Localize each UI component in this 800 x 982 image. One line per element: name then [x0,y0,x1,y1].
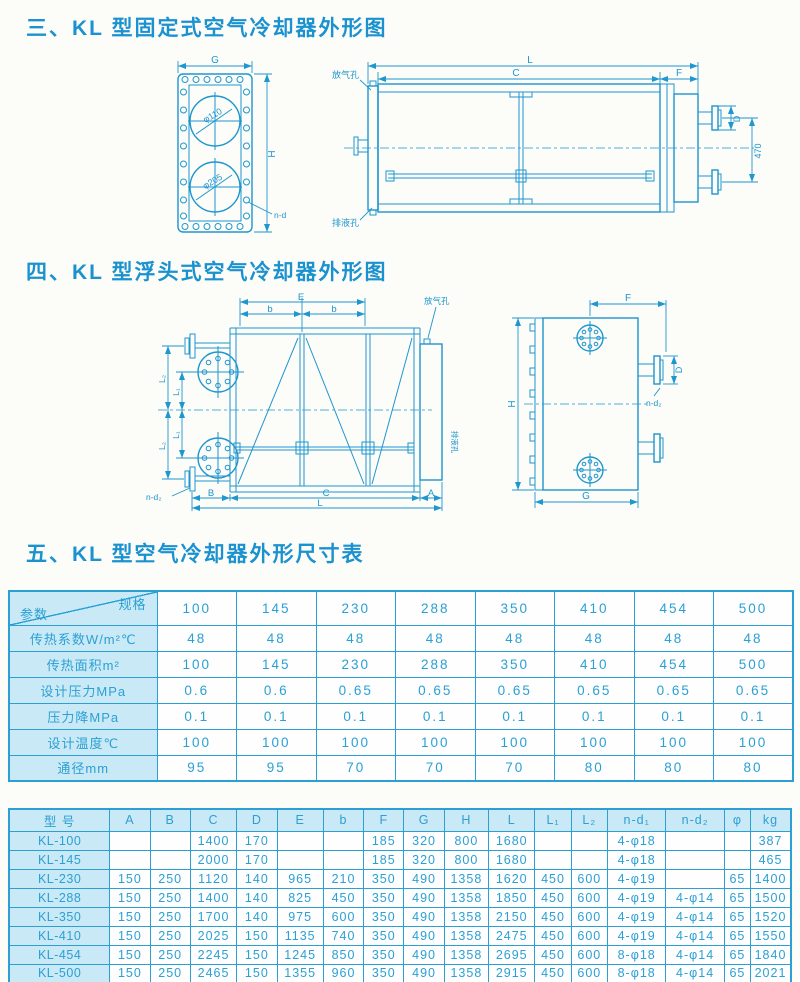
dim-value-cell: 350 [364,964,404,982]
param-value-cell: 100 [634,729,714,755]
dim-value-cell [666,831,724,850]
dim-value-cell: 1520 [751,907,792,926]
table-row: KL-3501502501700140975600350490135821504… [9,907,791,926]
vent-hole-label: 放气孔 [332,69,359,80]
spec-column-header: 288 [396,591,476,625]
dim-value-cell: 1850 [489,888,535,907]
dim-value-cell: 450 [535,907,571,926]
dim-value-cell [277,850,323,869]
dim-value-cell: 185 [364,850,404,869]
dim-value-cell [110,850,150,869]
table-row: 通径mm9595707070808080 [9,755,793,781]
dim-label-l: L [527,55,533,66]
dim-value-cell: 1120 [190,869,236,888]
model-cell: KL-145 [9,850,110,869]
dim-value-cell: 150 [237,964,277,982]
dim-label-l2-top: L₂ [157,375,167,383]
dim-value-cell [535,850,571,869]
dim-value-cell: 1358 [444,888,488,907]
dim-value-cell: 975 [277,907,323,926]
param-value-cell: 410 [555,651,635,677]
floating-head-side-view-drawing: E b b [130,292,470,514]
dim-column-header: 型 号 [9,809,110,831]
dim-value-cell: 350 [364,869,404,888]
param-value-cell: 0.65 [634,677,714,703]
param-value-cell: 48 [237,625,317,651]
table-row: KL-2881502501400140825450350490135818504… [9,888,791,907]
dim-value-cell: 490 [404,964,444,982]
spec-column-header: 454 [634,591,714,625]
param-row-label: 通径mm [9,755,157,781]
dim-label-c2: C [323,488,330,499]
dim-label-g2: G [582,491,590,502]
dim-value-cell: 1135 [277,926,323,945]
dim-value-cell: 4-φ14 [666,888,724,907]
dim-value-cell: 65 [724,888,750,907]
dim-column-header: E [277,809,323,831]
drain-hole-label: 排液孔 [332,217,359,228]
dim-value-cell: 150 [110,869,150,888]
bolt-hole-note-nd2: n-d₂ [146,492,162,502]
dim-column-header: B [150,809,190,831]
dim-value-cell: 490 [404,888,444,907]
dim-value-cell [323,850,363,869]
dim-value-cell: 140 [237,869,277,888]
section4-title: 四、KL 型浮头式空气冷却器外形图 [0,256,800,286]
param-value-cell: 0.65 [475,677,555,703]
dim-value-cell: 1358 [444,926,488,945]
dim-label-l2full: L [317,498,322,509]
param-row-label: 压力降MPa [9,703,157,729]
param-value-cell: 0.1 [157,703,237,729]
table-row: KL-100140017018532080016804-φ18387 [9,831,791,850]
model-cell: KL-410 [9,926,110,945]
dim-label-a: A [428,488,435,499]
dim-value-cell [110,831,150,850]
dim-value-cell: 2000 [190,850,236,869]
param-value-cell: 100 [157,729,237,755]
dim-value-cell: 2245 [190,945,236,964]
dim-value-cell: 140 [237,888,277,907]
model-cell: KL-288 [9,888,110,907]
dim-value-cell: 350 [364,945,404,964]
spec-column-header: 100 [157,591,237,625]
param-value-cell: 288 [396,651,476,677]
model-cell: KL-500 [9,964,110,982]
dim-value-cell: 850 [323,945,363,964]
dim-value-cell: 1245 [277,945,323,964]
param-row-label: 设计压力MPa [9,677,157,703]
dim-value-cell: 150 [110,907,150,926]
param-value-cell: 0.1 [237,703,317,729]
dim-value-cell: 170 [237,850,277,869]
dim-label-l2-bottom: L₂ [157,442,167,450]
dim-column-header: G [404,809,444,831]
spec-column-header: 230 [316,591,396,625]
dim-value-cell: 1620 [489,869,535,888]
corner-label-spec: 规格 [118,594,146,613]
dim-value-cell: 740 [323,926,363,945]
param-value-cell: 70 [396,755,476,781]
dim-value-cell: 8-φ18 [607,945,665,964]
dim-value-cell [150,831,190,850]
dim-value-cell: 210 [323,869,363,888]
floating-head-drawings: E b b [0,290,800,518]
param-value-cell: 100 [396,729,476,755]
dim-value-cell: 4-φ14 [666,907,724,926]
dim-label-b2: b [331,304,336,315]
param-value-cell: 0.65 [555,677,635,703]
dim-value-cell: 350 [364,926,404,945]
dim-column-header: L₁ [535,809,571,831]
dim-value-cell: 250 [150,926,190,945]
dim-value-cell: 4-φ14 [666,964,724,982]
dim-value-cell: 150 [237,945,277,964]
dim-value-cell: 1358 [444,964,488,982]
dim-value-cell: 250 [150,888,190,907]
dim-value-cell [666,869,724,888]
dim-value-cell [666,850,724,869]
dim-value-cell: 600 [323,907,363,926]
dim-value-cell: 490 [404,926,444,945]
dim-label-b-cap: B [208,488,214,499]
table-row: 设计温度℃100100100100100100100100 [9,729,793,755]
param-value-cell: 350 [475,651,555,677]
param-value-cell: 100 [316,729,396,755]
vent-hole-label-2: 放气孔 [424,296,450,306]
table-row: KL-145200017018532080016804-φ18465 [9,850,791,869]
dim-column-header: L [489,809,535,831]
section3-title: 三、KL 型固定式空气冷却器外形图 [0,0,800,42]
dim-column-header: A [110,809,150,831]
dim-value-cell [150,850,190,869]
dim-value-cell: 65 [724,907,750,926]
dim-value-cell: 350 [364,907,404,926]
table-row: 规格参数100145230288350410454500 [9,591,793,625]
corner-label-param: 参数 [20,604,48,623]
dim-value-cell: 1355 [277,964,323,982]
floating-head-end-view-drawing: F [488,292,688,514]
dim-value-cell: 1680 [489,831,535,850]
dim-value-cell: 150 [110,945,150,964]
table-row: 型 号ABCDEbFGHLL₁L₂n-d₁n-d₂φkg [9,809,791,831]
dim-value-cell: 320 [404,850,444,869]
dim-value-cell: 450 [535,945,571,964]
catalog-page: 三、KL 型固定式空气冷却器外形图 G [0,0,800,982]
dim-value-cell [571,831,607,850]
dim-value-cell: 1358 [444,907,488,926]
dim-value-cell: 2915 [489,964,535,982]
dim-value-cell: 1400 [190,888,236,907]
dim-label-h: H [267,150,278,157]
dim-value-cell [571,850,607,869]
param-value-cell: 0.1 [396,703,476,729]
dim-value-cell: 600 [571,888,607,907]
dim-value-cell: 350 [364,888,404,907]
spec-table-corner-cell: 规格参数 [9,591,157,625]
dim-value-cell: 150 [110,888,150,907]
table-row: KL-5001502502465150135596035049013582915… [9,964,791,982]
param-value-cell: 100 [157,651,237,677]
param-value-cell: 48 [396,625,476,651]
param-value-cell: 70 [475,755,555,781]
dim-column-header: b [323,809,363,831]
param-value-cell: 454 [634,651,714,677]
spec-column-header: 145 [237,591,317,625]
dim-value-cell: 140 [237,907,277,926]
dimension-table: 型 号ABCDEbFGHLL₁L₂n-d₁n-d₂φkgKL-100140017… [8,808,792,982]
dim-value-cell: 4-φ19 [607,888,665,907]
dim-label-f2: F [625,293,631,304]
param-value-cell: 48 [157,625,237,651]
dim-value-cell: 490 [404,945,444,964]
dim-value-cell: 2025 [190,926,236,945]
dim-value-cell: 490 [404,869,444,888]
param-value-cell: 80 [634,755,714,781]
dim-value-cell: 1358 [444,869,488,888]
dim-value-cell: 4-φ18 [607,850,665,869]
dim-value-cell: 465 [751,850,792,869]
dim-label-l1-top: L₁ [171,388,181,396]
dim-value-cell: 450 [323,888,363,907]
dim-value-cell: 320 [404,831,444,850]
param-value-cell: 0.65 [714,677,794,703]
model-cell: KL-454 [9,945,110,964]
drain-hole-label-2: 排液孔 [450,431,460,454]
model-cell: KL-100 [9,831,110,850]
dim-value-cell: 600 [571,945,607,964]
dim-value-cell: 1500 [751,888,792,907]
dim-value-cell: 960 [323,964,363,982]
param-value-cell: 48 [316,625,396,651]
dim-value-cell: 2465 [190,964,236,982]
dim-value-cell: 250 [150,869,190,888]
model-cell: KL-350 [9,907,110,926]
spec-column-header: 500 [714,591,794,625]
dim-value-cell: 600 [571,926,607,945]
spec-column-header: 350 [475,591,555,625]
dim-label-d2: D [674,366,684,373]
dim-value-cell: 1400 [751,869,792,888]
dim-value-cell: 600 [571,964,607,982]
dim-value-cell: 4-φ14 [666,945,724,964]
param-value-cell: 500 [714,651,794,677]
table-row: 压力降MPa0.10.10.10.10.10.10.10.1 [9,703,793,729]
param-value-cell: 100 [555,729,635,755]
dim-value-cell: 2695 [489,945,535,964]
fixed-type-end-view-drawing: G φ110 φ205 H [158,54,308,242]
dim-value-cell: 150 [110,926,150,945]
param-value-cell: 0.1 [714,703,794,729]
dim-label-l1-bottom: L₁ [171,431,181,439]
dim-value-cell: 1840 [751,945,792,964]
dim-value-cell: 1358 [444,945,488,964]
dim-column-header: H [444,809,488,831]
param-value-cell: 95 [157,755,237,781]
dim-value-cell [724,850,750,869]
spec-column-header: 410 [555,591,635,625]
dim-label-g: G [211,55,219,66]
dim-value-cell: 65 [724,869,750,888]
dim-value-cell: 825 [277,888,323,907]
param-value-cell: 0.6 [157,677,237,703]
table-row: KL-4541502502245150124585035049013582695… [9,945,791,964]
fixed-type-drawings: G φ110 φ205 H [0,54,800,246]
dim-value-cell: 185 [364,831,404,850]
dim-column-header: n-d₁ [607,809,665,831]
table-row: 设计压力MPa0.60.60.650.650.650.650.650.65 [9,677,793,703]
dim-value-cell: 450 [535,888,571,907]
param-row-label: 传热系数W/m²℃ [9,625,157,651]
param-row-label: 传热面积m² [9,651,157,677]
dim-label-b1: b [267,304,272,315]
param-value-cell: 0.65 [396,677,476,703]
dim-column-header: D [237,809,277,831]
param-value-cell: 0.65 [316,677,396,703]
dim-value-cell: 2021 [751,964,792,982]
param-value-cell: 48 [634,625,714,651]
param-value-cell: 80 [555,755,635,781]
spec-table: 规格参数100145230288350410454500传热系数W/m²℃484… [8,590,794,782]
param-value-cell: 48 [714,625,794,651]
param-value-cell: 70 [316,755,396,781]
dim-value-cell: 250 [150,907,190,926]
dim-value-cell: 150 [110,964,150,982]
param-value-cell: 0.1 [555,703,635,729]
param-row-label: 设计温度℃ [9,729,157,755]
dim-value-cell [323,831,363,850]
dim-value-cell: 800 [444,831,488,850]
bolt-hole-note: n-d [274,210,287,220]
dim-value-cell: 600 [571,869,607,888]
dim-value-cell: 4-φ19 [607,926,665,945]
dim-value-cell: 2475 [489,926,535,945]
dim-value-cell: 387 [751,831,792,850]
dim-value-cell: 65 [724,926,750,945]
param-value-cell: 80 [714,755,794,781]
dim-value-cell: 450 [535,964,571,982]
dim-label-e: E [298,292,304,303]
param-value-cell: 95 [237,755,317,781]
dim-column-header: L₂ [571,809,607,831]
dim-value-cell: 65 [724,945,750,964]
param-value-cell: 48 [475,625,555,651]
dim-value-cell: 1700 [190,907,236,926]
dim-value-cell: 4-φ18 [607,831,665,850]
dim-value-cell: 1680 [489,850,535,869]
dim-label-d: D [732,115,742,122]
dim-label-c: C [512,68,519,79]
dim-value-cell: 965 [277,869,323,888]
table-row: KL-4101502502025150113574035049013582475… [9,926,791,945]
dim-value-cell [724,831,750,850]
dim-value-cell: 4-φ19 [607,907,665,926]
dim-column-header: kg [751,809,792,831]
dim-value-cell: 1550 [751,926,792,945]
dim-value-cell: 65 [724,964,750,982]
param-value-cell: 100 [237,729,317,755]
param-value-cell: 100 [475,729,555,755]
dim-value-cell: 450 [535,869,571,888]
table-row: 传热面积m²100145230288350410454500 [9,651,793,677]
dim-value-cell: 250 [150,945,190,964]
dim-column-header: C [190,809,236,831]
dim-value-cell [277,831,323,850]
dim-value-cell: 8-φ18 [607,964,665,982]
dim-label-f: F [676,68,682,79]
dim-value-cell: 150 [237,926,277,945]
dim-value-cell: 450 [535,926,571,945]
bolt-hole-note-nd2-end: n-d₂ [646,398,662,408]
dim-value-cell: 800 [444,850,488,869]
dim-column-header: F [364,809,404,831]
dim-label-h2: H [507,400,518,407]
dim-value-cell: 250 [150,964,190,982]
table-row: 传热系数W/m²℃4848484848484848 [9,625,793,651]
param-value-cell: 0.1 [475,703,555,729]
param-value-cell: 0.6 [237,677,317,703]
dim-value-cell: 2150 [489,907,535,926]
dim-column-header: n-d₂ [666,809,724,831]
dim-label-470: 470 [753,143,763,158]
dim-value-cell: 4-φ19 [607,869,665,888]
param-value-cell: 0.1 [634,703,714,729]
dim-column-header: φ [724,809,750,831]
fixed-type-side-view-drawing: 放气孔 排液孔 L [330,54,770,242]
table-row: KL-2301502501120140965210350490135816204… [9,869,791,888]
section5-title: 五、KL 型空气冷却器外形尺寸表 [0,538,800,568]
dim-value-cell [535,831,571,850]
dim-value-cell: 1400 [190,831,236,850]
model-cell: KL-230 [9,869,110,888]
dim-value-cell: 490 [404,907,444,926]
param-value-cell: 230 [316,651,396,677]
dim-value-cell: 600 [571,907,607,926]
param-value-cell: 0.1 [316,703,396,729]
dim-value-cell: 4-φ14 [666,926,724,945]
param-value-cell: 145 [237,651,317,677]
param-value-cell: 48 [555,625,635,651]
dim-value-cell: 170 [237,831,277,850]
param-value-cell: 100 [714,729,794,755]
